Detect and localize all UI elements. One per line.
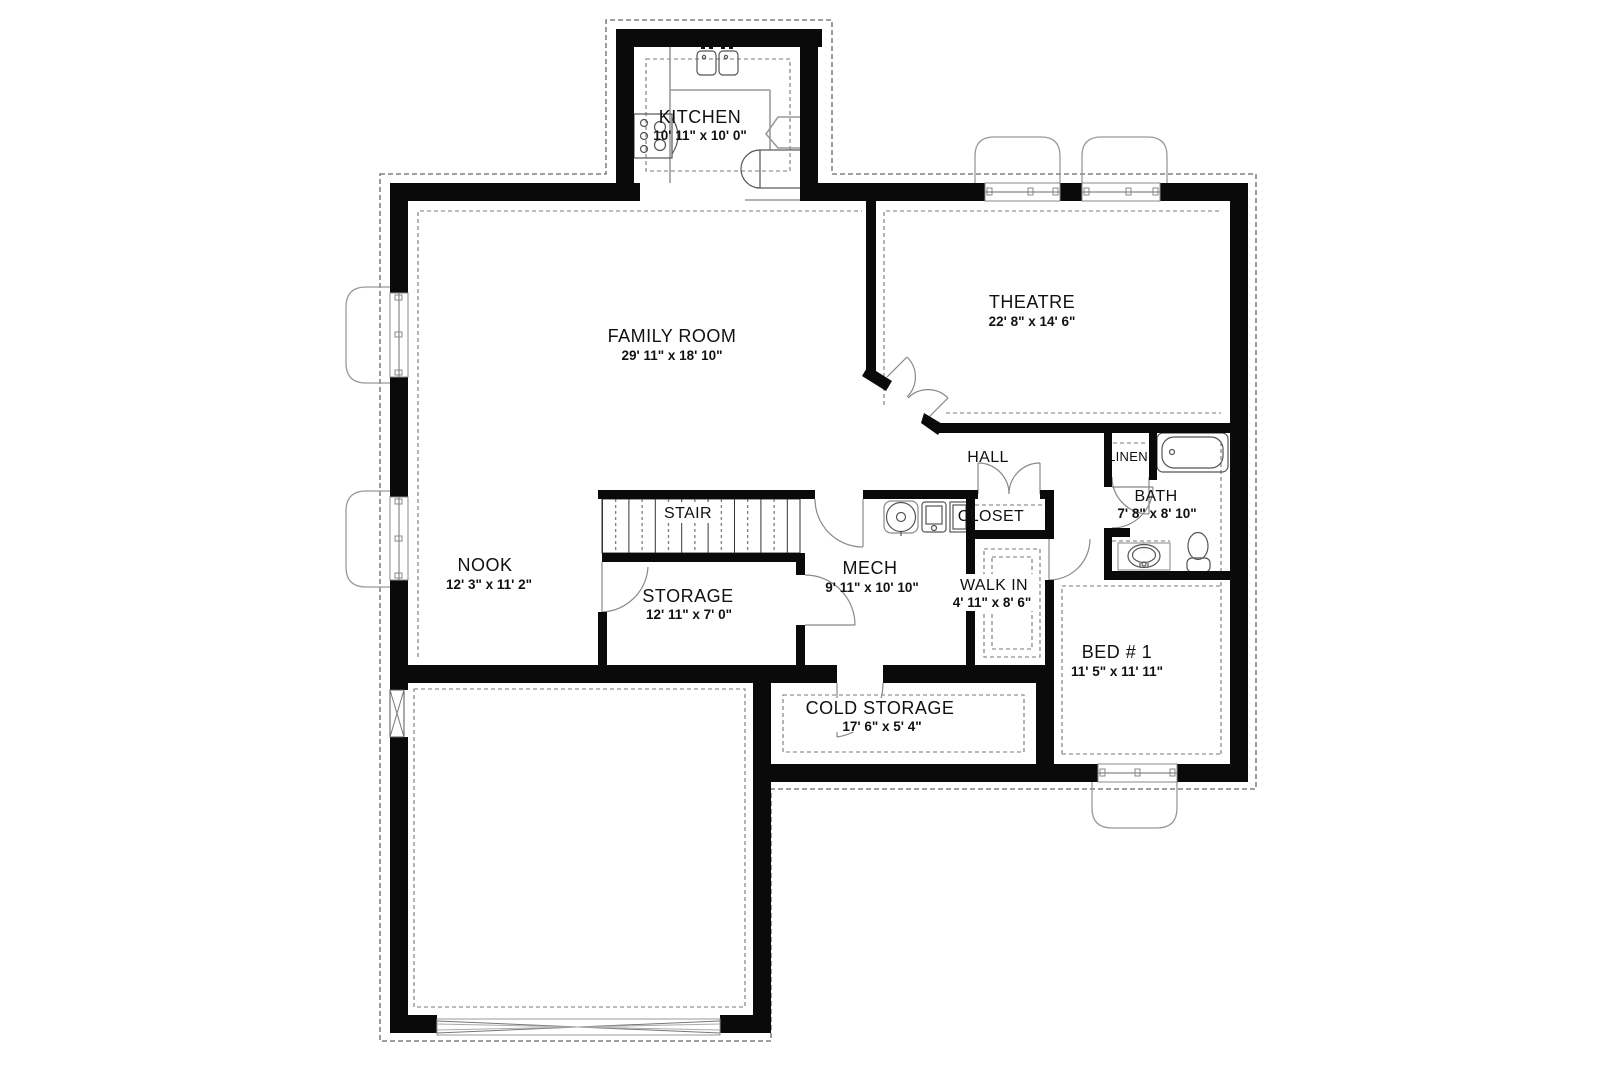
stair-mech-door xyxy=(815,499,863,547)
label-kitchen-dims: 10' 11" x 10' 0" xyxy=(653,128,747,143)
label-family-dims: 29' 11" x 18' 10" xyxy=(621,348,722,363)
label-bed1-dims: 11' 5" x 11' 11" xyxy=(1071,664,1163,679)
theatre-double-door xyxy=(887,357,948,418)
garage-door xyxy=(437,1019,720,1035)
wall-segment xyxy=(598,490,815,499)
wall-segment xyxy=(753,665,771,1033)
label-nook-name: NOOK xyxy=(457,555,512,575)
label-walkin-dims: 4' 11" x 8' 6" xyxy=(953,595,1032,610)
label-theatre-dims: 22' 8" x 14' 6" xyxy=(989,314,1076,329)
mech-fixtures xyxy=(884,501,969,536)
wall-segment xyxy=(966,530,1054,539)
wall-segment xyxy=(1060,183,1082,201)
hall-closet-double-door xyxy=(978,463,1040,494)
toilet xyxy=(1187,533,1210,573)
label-mech-name: MECH xyxy=(843,558,898,578)
wall-segment xyxy=(866,201,876,372)
bathtub xyxy=(1157,433,1228,472)
wall-segment xyxy=(390,665,837,683)
label-walkin-name: WALK IN xyxy=(960,577,1028,594)
wall-segment xyxy=(796,625,805,665)
floor-plan-drawing: KITCHEN 10' 11" x 10' 0" FAMILY ROOM 29'… xyxy=(0,0,1600,1067)
nook-storage-door xyxy=(602,562,648,612)
wall-segment xyxy=(602,553,805,562)
label-mech-dims: 9' 11" x 10' 10" xyxy=(825,580,919,595)
label-bath-dims: 7' 8" x 8' 10" xyxy=(1117,506,1196,521)
window-bed xyxy=(1098,764,1177,782)
label-kitchen-name: KITCHEN xyxy=(659,107,742,127)
label-nook-dims: 12' 3" x 11' 2" xyxy=(446,577,532,592)
wall-segment xyxy=(1149,433,1157,480)
water-heater xyxy=(884,501,918,536)
fridge xyxy=(741,150,802,188)
wall-segment xyxy=(390,183,408,293)
wall-segment xyxy=(390,183,640,201)
label-hall: HALL xyxy=(967,449,1009,466)
label-bath-name: BATH xyxy=(1134,488,1177,505)
label-coldstorage-name: COLD STORAGE xyxy=(806,698,955,718)
label-storage-name: STORAGE xyxy=(642,586,733,606)
wall-segment xyxy=(818,183,985,201)
wall-segment xyxy=(390,377,408,497)
window-well-nook xyxy=(346,491,390,587)
label-storage-dims: 12' 11" x 7' 0" xyxy=(646,607,732,622)
wall-segment xyxy=(862,366,892,391)
label-theatre-name: THEATRE xyxy=(989,292,1075,312)
wall-segment xyxy=(753,764,1036,782)
label-linen: LINEN xyxy=(1108,449,1148,464)
wall-segment xyxy=(883,665,1054,683)
walls xyxy=(390,29,1248,1033)
window-theatre-1 xyxy=(985,183,1060,201)
label-family-name: FAMILY ROOM xyxy=(608,326,737,346)
window-nook xyxy=(390,497,408,580)
wall-segment xyxy=(1230,183,1248,782)
walk-in-door xyxy=(1049,539,1090,580)
window-family xyxy=(390,293,408,377)
vanity-sink xyxy=(1118,543,1170,570)
label-coldstorage-dims: 17' 6" x 5' 4" xyxy=(842,719,921,734)
wall-segment xyxy=(1104,528,1130,537)
window-well-theatre-2 xyxy=(1082,137,1167,183)
window-well-family xyxy=(346,287,390,383)
window-theatre-2 xyxy=(1082,183,1160,201)
wall-segment xyxy=(1177,764,1248,782)
label-stair: STAIR xyxy=(664,505,712,522)
wall-segment xyxy=(1036,764,1098,782)
wall-segment xyxy=(1112,571,1248,580)
wall-segment xyxy=(938,423,1248,433)
wall-segment xyxy=(796,553,805,575)
wall-segment xyxy=(390,1015,437,1033)
wall-segment xyxy=(616,29,822,47)
window-well-theatre-1 xyxy=(975,137,1060,183)
wall-segment xyxy=(800,29,818,201)
label-bed1-name: BED # 1 xyxy=(1082,642,1153,662)
corner-cabinet xyxy=(766,117,802,148)
label-closet: CLOSET xyxy=(958,508,1024,525)
wall-segment xyxy=(863,490,978,499)
wall-segment xyxy=(598,612,607,665)
wall-vent-panel xyxy=(390,690,404,737)
wall-segment xyxy=(616,29,634,201)
floor-plan-page: KITCHEN 10' 11" x 10' 0" FAMILY ROOM 29'… xyxy=(0,0,1600,1067)
wall-segment xyxy=(1045,580,1054,665)
wall-segment xyxy=(390,737,408,1033)
